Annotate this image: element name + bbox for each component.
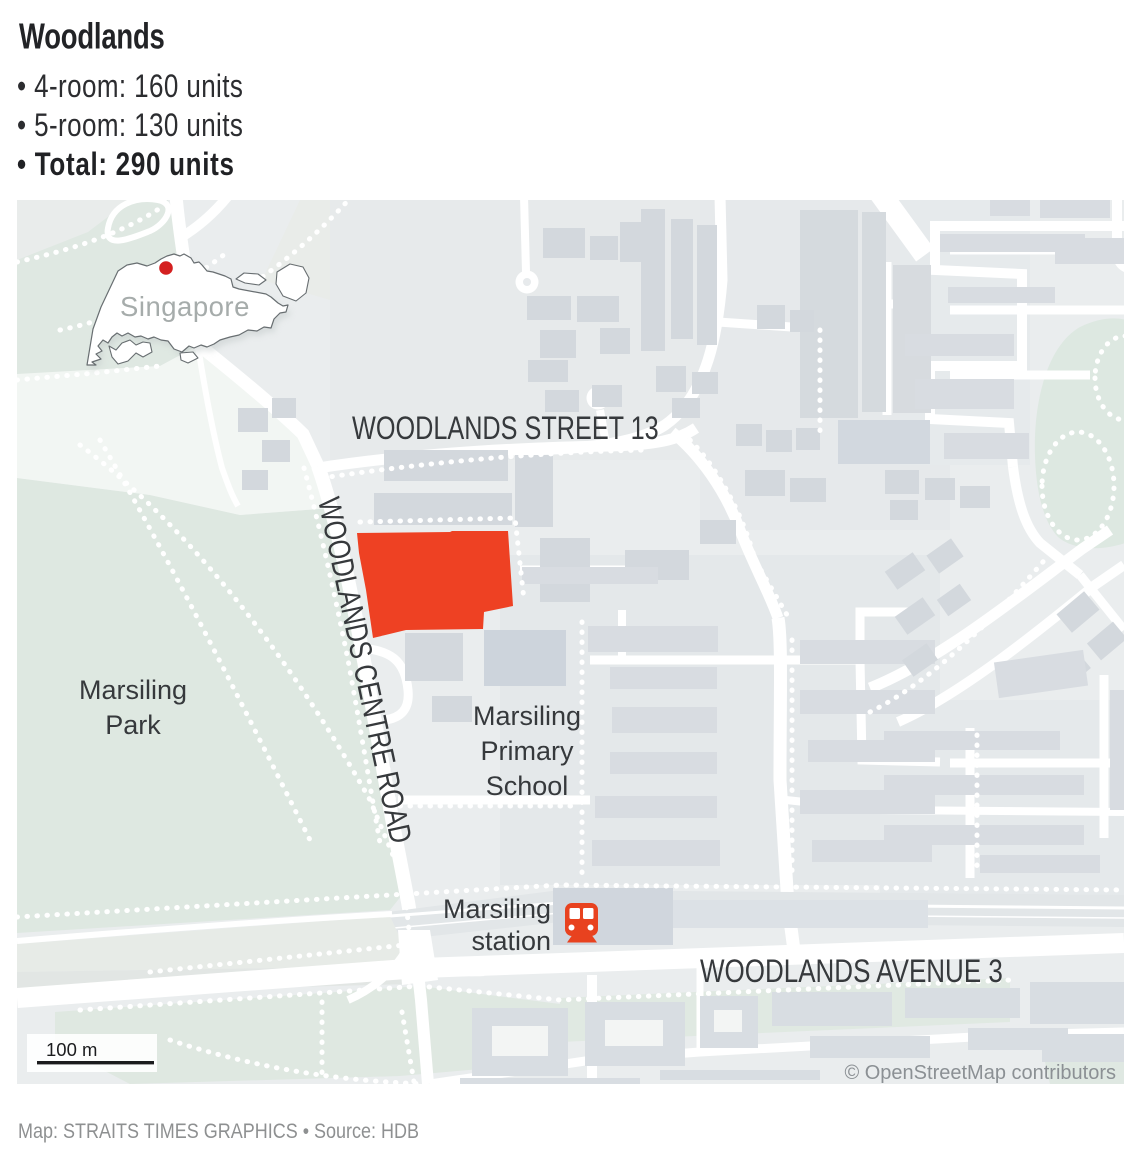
- svg-text:Marsiling: Marsiling: [443, 894, 551, 924]
- svg-text:WOODLANDS STREET 13: WOODLANDS STREET 13: [352, 411, 659, 447]
- svg-text:Marsiling: Marsiling: [79, 675, 187, 705]
- svg-text:© OpenStreetMap contributors: © OpenStreetMap contributors: [844, 1062, 1116, 1084]
- svg-text:School: School: [486, 771, 569, 801]
- svg-text:100 m: 100 m: [46, 1039, 97, 1060]
- svg-text:Singapore: Singapore: [120, 291, 250, 322]
- svg-text:Primary: Primary: [481, 736, 574, 766]
- svg-text:Marsiling: Marsiling: [473, 701, 581, 731]
- svg-text:station: station: [471, 926, 551, 956]
- svg-text:WOODLANDS AVENUE 3: WOODLANDS AVENUE 3: [700, 953, 1003, 989]
- svg-text:Park: Park: [105, 710, 161, 740]
